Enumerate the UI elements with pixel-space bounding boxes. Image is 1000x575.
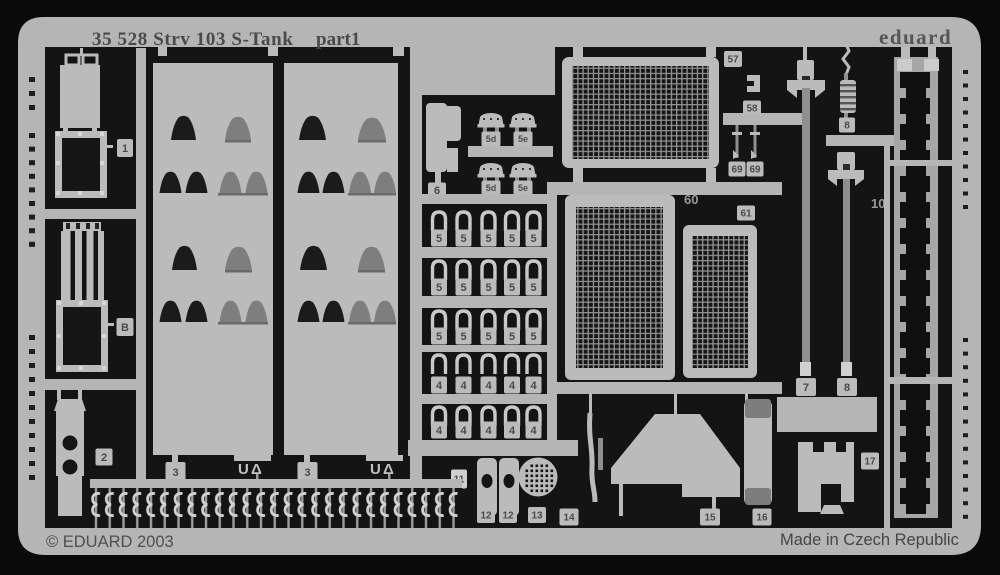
svg-text:2: 2 [101,452,107,464]
svg-text:14: 14 [563,513,575,524]
svg-text:eduard: eduard [879,25,952,49]
svg-text:5: 5 [485,233,491,245]
svg-text:3: 3 [304,467,310,479]
svg-text:5d: 5d [486,134,497,144]
svg-text:4: 4 [436,425,443,437]
svg-text:17: 17 [864,457,876,468]
svg-text:5: 5 [509,233,515,245]
svg-text:5d: 5d [486,183,497,193]
svg-text:© EDUARD 2003: © EDUARD 2003 [46,533,174,551]
svg-text:5: 5 [530,282,536,294]
svg-text:4: 4 [485,425,492,437]
svg-text:69: 69 [731,165,743,176]
svg-text:5: 5 [436,282,442,294]
svg-text:5: 5 [530,331,536,343]
svg-text:Made in Czech Republic: Made in Czech Republic [780,531,959,549]
svg-text:15: 15 [704,513,716,524]
svg-text:12: 12 [480,511,492,522]
svg-text:58: 58 [746,104,758,115]
svg-text:61: 61 [740,209,752,220]
svg-text:1: 1 [122,143,128,155]
svg-text:4: 4 [509,425,516,437]
svg-text:10: 10 [871,196,885,211]
svg-text:5e: 5e [518,134,528,144]
svg-text:4: 4 [460,425,467,437]
svg-text:5: 5 [436,331,442,343]
svg-text:5: 5 [485,282,491,294]
svg-text:4: 4 [530,380,537,392]
svg-text:8: 8 [844,121,850,132]
svg-text:3: 3 [172,467,178,479]
svg-text:4: 4 [436,380,443,392]
svg-text:5: 5 [460,331,466,343]
svg-text:5: 5 [509,331,515,343]
svg-text:57: 57 [727,55,739,66]
svg-text:5: 5 [509,282,515,294]
svg-text:16: 16 [756,513,768,524]
svg-text:5: 5 [460,282,466,294]
svg-text:60: 60 [684,192,698,207]
svg-text:U: U [370,461,381,478]
svg-text:5: 5 [485,331,491,343]
svg-text:7: 7 [803,382,809,394]
svg-text:8: 8 [844,382,850,394]
svg-text:part1: part1 [316,29,360,50]
svg-text:4: 4 [460,380,467,392]
svg-text:35 528 Strv 103 S-Tank: 35 528 Strv 103 S-Tank [92,29,293,50]
svg-text:U: U [238,461,249,478]
svg-text:B: B [121,322,129,334]
svg-text:5: 5 [530,233,536,245]
svg-text:12: 12 [502,511,514,522]
svg-text:4: 4 [485,380,492,392]
svg-text:5: 5 [436,233,442,245]
svg-text:69: 69 [749,165,761,176]
svg-text:13: 13 [531,511,543,522]
svg-text:4: 4 [530,425,537,437]
svg-text:5e: 5e [518,183,528,193]
svg-text:5: 5 [460,233,466,245]
svg-text:4: 4 [509,380,516,392]
